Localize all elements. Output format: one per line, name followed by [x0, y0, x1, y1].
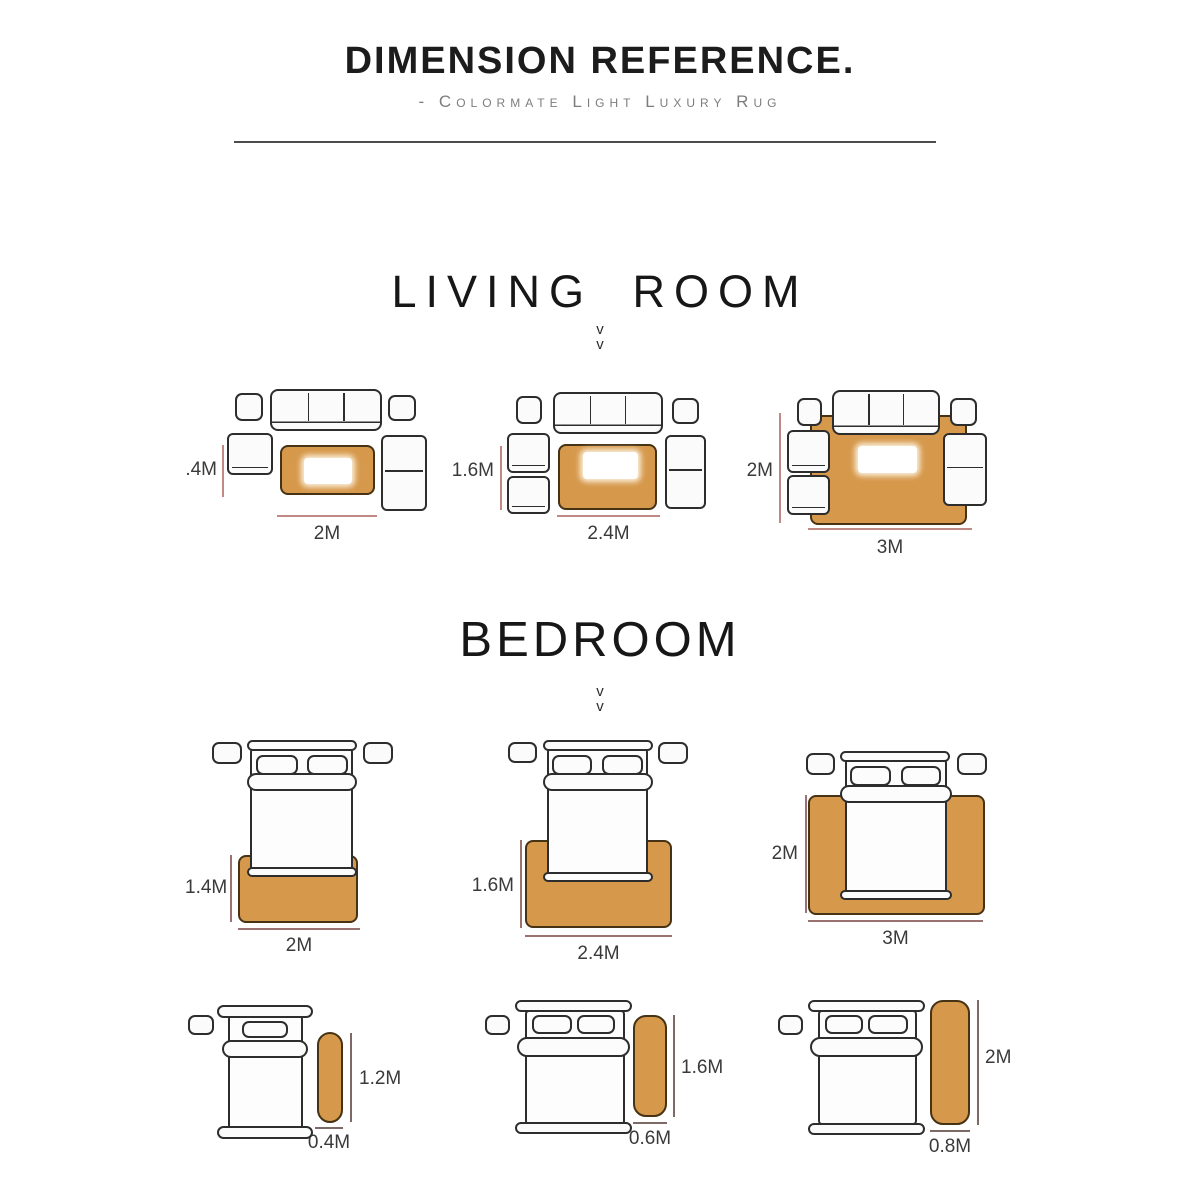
armchair-icon: [227, 433, 273, 475]
pillow-icon: [602, 755, 643, 775]
living-room-heading: LIVING ROOM: [0, 266, 1200, 318]
bed-foot-icon: [543, 872, 653, 882]
width-dim-line: [808, 528, 972, 530]
living-room-layout-1: .4M 2M: [185, 383, 450, 553]
height-dim-label: 1.6M: [450, 460, 494, 482]
pillow-icon: [850, 766, 891, 786]
lounge-chair-icon: [943, 433, 987, 506]
sofa-icon: [553, 392, 663, 434]
height-dim-line: [805, 795, 807, 913]
chevron-down-icon: v: [0, 700, 1200, 713]
height-dim-label: 1.4M: [185, 877, 224, 899]
width-dim-label: 0.6M: [625, 1128, 675, 1150]
side-table-icon: [672, 398, 699, 424]
armchair-icon: [507, 433, 550, 473]
nightstand-icon: [188, 1015, 214, 1035]
bedroom-heading: BEDROOM: [0, 612, 1200, 668]
side-table-icon: [950, 398, 977, 426]
height-dim-line: [222, 445, 224, 497]
sofa-icon: [832, 390, 940, 435]
height-dim-line: [977, 1000, 979, 1125]
runner-rug: [930, 1000, 970, 1125]
height-dim-label: 1.6M: [470, 875, 514, 897]
pillow-icon: [825, 1015, 863, 1034]
pillow-icon: [242, 1021, 288, 1038]
bedroom-layout-1: 1.4M 2M: [185, 735, 455, 965]
coffee-table-icon: [304, 458, 352, 484]
sofa-icon: [270, 389, 382, 431]
height-dim-line: [779, 413, 781, 523]
nightstand-icon: [778, 1015, 803, 1035]
runner-layout-2: 1.6M 0.6M: [470, 985, 720, 1170]
height-dim-label: 2M: [985, 1047, 1011, 1069]
height-dim-line: [500, 446, 502, 510]
height-dim-label: 2M: [755, 843, 798, 865]
height-dim-label: .4M: [185, 459, 217, 481]
width-dim-label: 3M: [808, 928, 983, 950]
page-title: DIMENSION REFERENCE.: [0, 40, 1200, 83]
runner-rug: [633, 1015, 667, 1117]
armchair-icon: [507, 476, 550, 514]
height-dim-label: 1.6M: [681, 1057, 723, 1079]
rug: [280, 445, 375, 495]
nightstand-icon: [508, 742, 537, 763]
footboard-icon: [217, 1126, 313, 1139]
bed-foot-icon: [840, 890, 952, 900]
headboard-icon: [543, 740, 653, 751]
side-table-icon: [516, 396, 542, 424]
bolster-icon: [222, 1040, 308, 1058]
width-dim-line: [557, 515, 660, 517]
bolster-icon: [810, 1037, 923, 1057]
pillow-icon: [532, 1015, 572, 1034]
width-dim-label: 2.4M: [557, 523, 660, 545]
armchair-icon: [787, 475, 830, 515]
nightstand-icon: [957, 753, 987, 775]
living-room-layout-2: 1.6M 2.4M: [450, 380, 735, 560]
rug: [558, 444, 657, 510]
coffee-table-icon: [583, 452, 638, 479]
header-divider: [234, 141, 936, 143]
pillow-icon: [577, 1015, 615, 1034]
blanket-bar-icon: [543, 773, 653, 791]
coffee-table-icon: [858, 446, 917, 473]
dimension-reference-page: DIMENSION REFERENCE. - Colormate Light L…: [0, 0, 1200, 1200]
headboard-icon: [247, 740, 357, 751]
chevron-down-icon: v: [0, 338, 1200, 351]
width-dim-line: [525, 935, 672, 937]
blanket-bar-icon: [247, 773, 357, 791]
width-dim-label: 3M: [808, 537, 972, 559]
lounge-chair-icon: [381, 435, 427, 511]
runner-layout-1: 1.2M 0.4M: [180, 995, 420, 1170]
living-room-layout-3: 2M 3M: [745, 378, 1045, 568]
height-dim-line: [673, 1015, 675, 1117]
chevron-down-icon: v: [0, 685, 1200, 698]
bedroom-layout-3: 2M 3M: [755, 735, 1055, 970]
chevron-down-icon: v: [0, 323, 1200, 336]
width-dim-label: 2.4M: [525, 943, 672, 965]
width-dim-line: [808, 920, 983, 922]
width-dim-line: [238, 928, 360, 930]
width-dim-line: [315, 1127, 343, 1129]
pillow-icon: [901, 766, 941, 786]
runner-layout-3: 2M 0.8M: [755, 985, 1055, 1175]
width-dim-line: [930, 1130, 970, 1132]
page-subtitle: - Colormate Light Luxury Rug: [0, 92, 1200, 112]
width-dim-label: 2M: [277, 523, 377, 545]
pillow-icon: [552, 755, 592, 775]
armchair-icon: [787, 430, 830, 473]
blanket-bar-icon: [840, 785, 952, 803]
width-dim-line: [277, 515, 377, 517]
footboard-icon: [515, 1122, 632, 1134]
headboard-icon: [808, 1000, 925, 1012]
height-dim-line: [520, 840, 522, 928]
side-table-icon: [797, 398, 822, 426]
nightstand-icon: [485, 1015, 510, 1035]
height-dim-label: 1.2M: [359, 1068, 401, 1090]
side-table-icon: [388, 395, 416, 421]
side-table-icon: [235, 393, 263, 421]
bed-foot-icon: [247, 867, 357, 877]
runner-rug: [317, 1032, 343, 1123]
width-dim-label: 0.4M: [307, 1132, 351, 1154]
bedroom-layout-2: 1.6M 2.4M: [470, 735, 755, 975]
nightstand-icon: [658, 742, 688, 764]
pillow-icon: [868, 1015, 908, 1034]
lounge-chair-icon: [665, 435, 706, 509]
headboard-icon: [217, 1005, 313, 1018]
pillow-icon: [307, 755, 348, 775]
width-dim-label: 0.8M: [922, 1136, 978, 1158]
nightstand-icon: [212, 742, 242, 764]
height-dim-line: [230, 855, 232, 922]
nightstand-icon: [363, 742, 393, 764]
headboard-icon: [515, 1000, 632, 1012]
headboard-icon: [840, 751, 950, 762]
bolster-icon: [517, 1037, 630, 1057]
height-dim-label: 2M: [745, 460, 773, 482]
pillow-icon: [256, 755, 298, 775]
height-dim-line: [350, 1033, 352, 1122]
nightstand-icon: [806, 753, 835, 775]
width-dim-line: [633, 1122, 667, 1124]
footboard-icon: [808, 1123, 925, 1135]
width-dim-label: 2M: [238, 935, 360, 957]
